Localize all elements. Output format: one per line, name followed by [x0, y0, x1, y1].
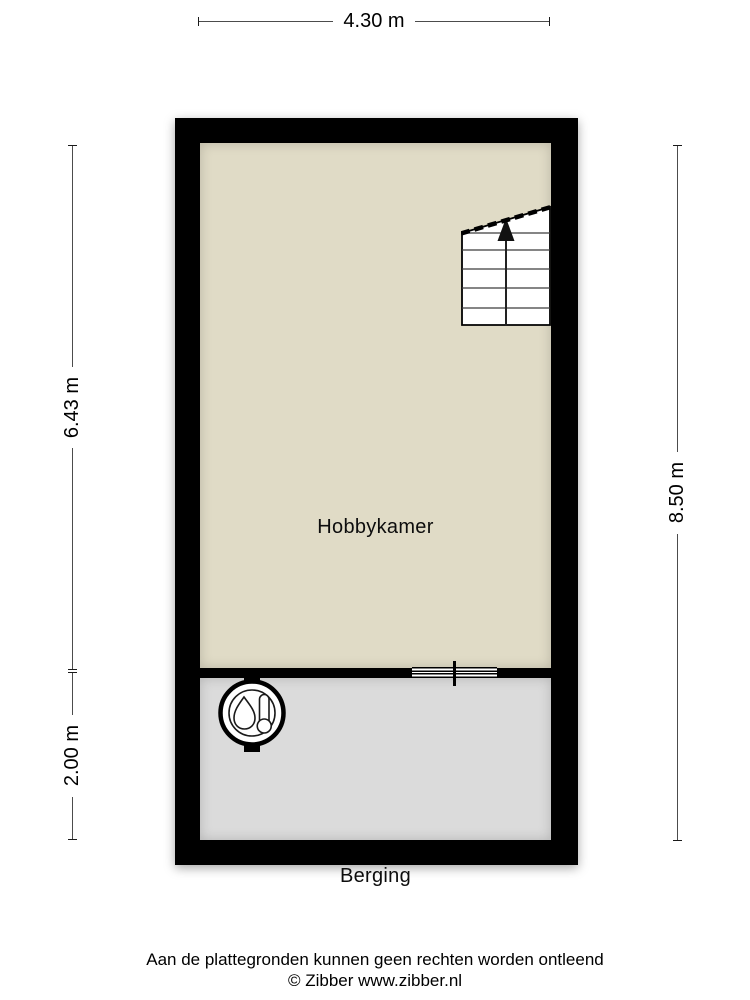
dimension-label: 8.50 m — [666, 452, 689, 533]
boiler-icon — [212, 673, 292, 753]
dimension-line — [677, 146, 678, 452]
footer-disclaimer: Aan de plattegronden kunnen geen rechten… — [0, 949, 750, 970]
footer: Aan de plattegronden kunnen geen rechten… — [0, 949, 750, 991]
dimension-line — [72, 797, 73, 839]
staircase — [461, 205, 551, 326]
thermometer-bulb-icon — [257, 719, 271, 733]
room-label-hobbykamer: Hobbykamer — [200, 516, 551, 539]
dimension-line — [677, 534, 678, 840]
dimension-line — [199, 21, 333, 22]
dimension-end-tick — [68, 669, 77, 670]
dimension-label: 6.43 m — [61, 367, 84, 448]
dimension-line — [72, 673, 73, 715]
room-label-berging: Berging — [200, 865, 551, 888]
footer-copyright: © Zibber www.zibber.nl — [0, 970, 750, 991]
dimension-label: 4.30 m — [333, 10, 414, 33]
dimension-right-total: 8.50 m — [664, 145, 690, 841]
dimension-line — [72, 146, 73, 367]
interior-window-center-tick — [453, 661, 456, 686]
boiler-outer-circle — [221, 682, 284, 745]
dimension-end-tick — [673, 840, 682, 841]
dimension-left-lower: 2.00 m — [59, 672, 85, 840]
dimension-line — [72, 448, 73, 669]
dimension-line — [415, 21, 549, 22]
dimension-end-tick — [68, 839, 77, 840]
dimension-top-width: 4.30 m — [198, 8, 550, 34]
dimension-end-tick — [549, 17, 550, 26]
dimension-left-upper: 6.43 m — [59, 145, 85, 670]
dimension-label: 2.00 m — [61, 715, 84, 796]
floorplan-walls: Hobbykamer Berging — [175, 118, 578, 865]
